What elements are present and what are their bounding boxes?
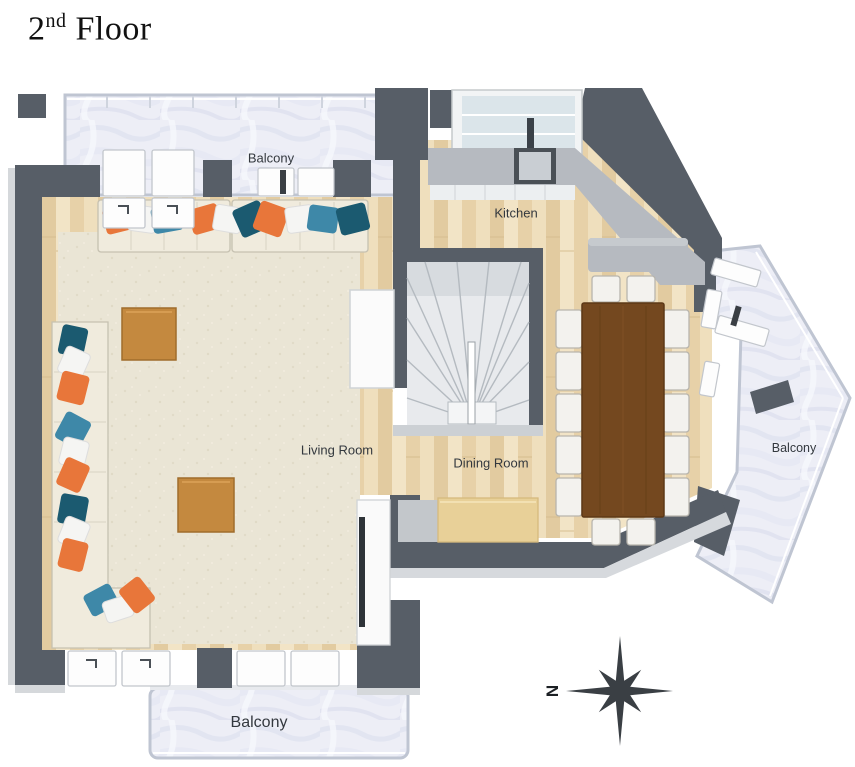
label-balcony-top: Balcony [248, 151, 294, 166]
dining-table [582, 303, 664, 517]
label-kitchen: Kitchen [494, 206, 537, 221]
compass-rose [566, 636, 673, 746]
label-dining-room: Dining Room [453, 456, 528, 471]
floor-plan-drawing [0, 0, 855, 767]
floor-plan-page: 2nd Floor [0, 0, 855, 767]
coffee-table-2 [178, 478, 234, 532]
coffee-table-1 [122, 308, 176, 360]
label-living-room: Living Room [301, 443, 373, 458]
sideboard [438, 498, 538, 542]
closet [350, 290, 394, 388]
kitchen-sink [514, 148, 556, 184]
tv-unit [357, 500, 390, 645]
cabinet [398, 500, 440, 542]
label-balcony-bottom: Balcony [231, 714, 288, 732]
kitchen-bench-edge [588, 238, 688, 246]
label-balcony-right: Balcony [772, 441, 816, 455]
compass-north-label: N [543, 685, 563, 697]
